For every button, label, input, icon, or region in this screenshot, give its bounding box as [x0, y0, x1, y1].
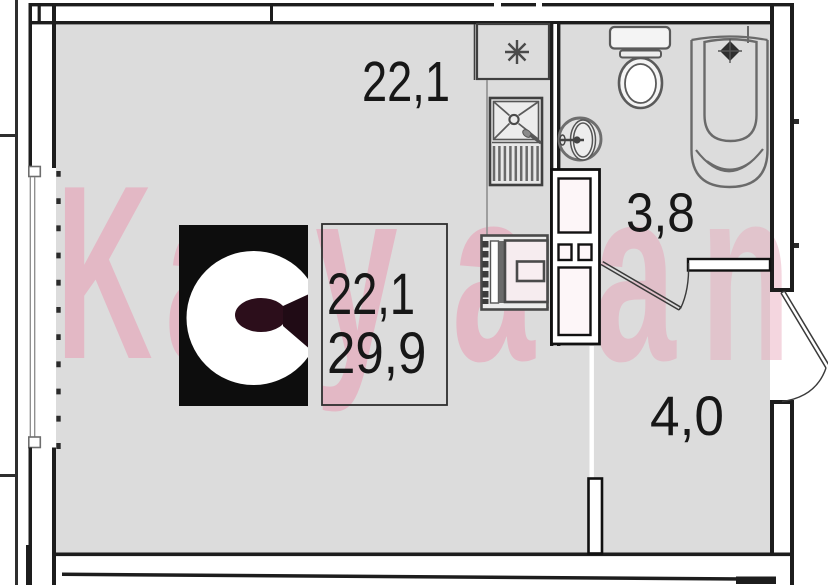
svg-text:a: a — [593, 137, 677, 413]
svg-text:n: n — [700, 137, 791, 413]
svg-text:3,8: 3,8 — [626, 183, 695, 244]
svg-text:K: K — [56, 135, 153, 411]
svg-text:22,1: 22,1 — [362, 50, 450, 113]
svg-text:29,9: 29,9 — [327, 321, 426, 386]
svg-text:22,1: 22,1 — [327, 263, 415, 328]
svg-text:4,0: 4,0 — [650, 385, 724, 448]
